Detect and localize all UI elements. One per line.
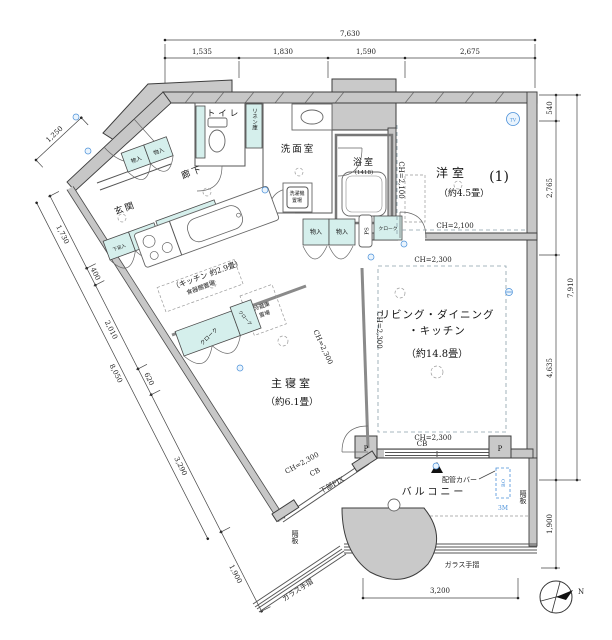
ldk-label-line1: リビング・ダイニング	[380, 308, 495, 321]
master-bedroom-label: 主寝室	[271, 376, 313, 390]
m3-label: 3M	[498, 505, 508, 512]
ch2300-label: CH=2,300	[311, 329, 334, 366]
ps-label: PS	[365, 227, 371, 235]
balcony-planter	[342, 508, 437, 579]
washroom-label: 洗面室	[281, 143, 316, 155]
fix-window-label: 下部FIX	[318, 474, 346, 495]
bathroom-size-label: (1418)	[355, 169, 373, 176]
bathroom-label: 浴室	[353, 156, 375, 168]
storage-strip: 物入 物入 PS クローク	[303, 215, 402, 259]
outlet-icon	[85, 148, 91, 154]
divider-panel-label: 隔板	[291, 529, 299, 545]
ldk-label-line2: ・キッチン	[408, 325, 466, 337]
outlet-icon	[401, 241, 407, 247]
dim-left-8050: 8,050	[108, 363, 124, 384]
western-room-size: （約4.5畳）	[439, 187, 489, 199]
cb-label: CB	[308, 466, 321, 478]
toilet-cabinet	[196, 106, 205, 158]
balcony: バルコニー 配管カバー BO 3M 隔板 隔板 ガラス手摺 ガラス手摺 CH=2…	[253, 451, 537, 612]
outlet-icon	[368, 254, 374, 260]
pillar-label: P	[498, 445, 503, 453]
shaft-block	[332, 79, 396, 130]
toilet-tank	[208, 118, 227, 127]
dim-right-4635: 4,635	[546, 358, 554, 378]
north-needle	[556, 590, 573, 600]
dim-top-seg4: 2,675	[460, 48, 480, 56]
dim-top-seg2: 1,830	[273, 48, 293, 56]
compass: N	[540, 581, 584, 613]
north-label: N	[578, 588, 584, 596]
dim-top-seg1: 1,535	[192, 48, 212, 56]
dims-bottom: 3,200	[362, 578, 520, 599]
toilet-label: トイレ	[207, 109, 242, 119]
dim-top-total: 7,630	[340, 30, 360, 38]
ch2100-label: CH=2,100	[436, 222, 473, 230]
dim-top-seg3: 1,590	[356, 48, 376, 56]
floor-plan-canvas: 7,630 1,535 1,830 1,590 2,675 540 2,765 …	[0, 0, 612, 640]
toilet-bowl	[209, 130, 225, 152]
dim-right-7910: 7,910	[567, 278, 575, 298]
western-room-number: (1)	[489, 169, 509, 185]
balcony-side-wall	[529, 458, 537, 546]
bathtub	[342, 172, 386, 216]
storage-label: 物入	[310, 228, 322, 236]
planter-drain	[388, 499, 400, 511]
dim-right-1900: 1,900	[546, 514, 554, 534]
pipe-cover-label: 配管カバー	[442, 475, 477, 484]
dim-left-1250: 1,250	[45, 125, 65, 145]
dim-right-540: 540	[546, 101, 554, 114]
divider-panel-label: 隔板	[519, 489, 527, 505]
western-room: 洋室 (1) （約4.5畳） CH=2,100 CH=2,100 TV	[397, 113, 526, 239]
dim-left-1900: 1,900	[227, 563, 243, 584]
kitchen-counter	[134, 186, 280, 268]
ch2100-label: CH=2,100	[397, 161, 405, 198]
outlet-icon	[237, 365, 243, 371]
hallway-label: 廊下	[180, 163, 205, 182]
linen-label: リネン庫	[251, 108, 258, 131]
dim-left-400: 400	[89, 266, 102, 282]
outlet-icon	[73, 114, 79, 120]
storage-label: 物入	[336, 228, 348, 236]
washer-space-label2: 置場	[292, 197, 302, 204]
pillar-label: P	[364, 445, 369, 453]
entrance-label: 玄関	[113, 199, 138, 218]
dims-left-1250: 1,250	[28, 110, 89, 169]
washer-space-label: 洗濯機	[289, 190, 304, 197]
balcony-label: バルコニー	[402, 486, 467, 498]
cloak-label: クローク	[378, 226, 397, 232]
western-room-label: 洋室	[436, 165, 468, 180]
glass-rail-label: ガラス手摺	[445, 560, 480, 569]
outlet-icon	[262, 187, 268, 193]
bo-label: BO	[501, 479, 507, 487]
right-wall	[527, 92, 537, 458]
vanity-basin	[301, 110, 323, 124]
master-bedroom-size: （約6.1畳）	[265, 396, 318, 408]
ldk-size-label: （約14.8畳）	[406, 347, 468, 360]
dim-bottom-3200: 3,200	[430, 587, 450, 595]
floor-plan-svg: 7,630 1,535 1,830 1,590 2,675 540 2,765 …	[0, 0, 612, 640]
dims-right: 540 2,765 4,635 7,910 1,900	[539, 94, 581, 570]
tv-label: TV	[510, 118, 517, 124]
outlet-icon	[433, 463, 439, 469]
cb-label: CB	[417, 440, 428, 448]
ch2300-label: CH=2,300	[414, 256, 451, 264]
dim-right-2765: 2,765	[546, 178, 554, 198]
dim-left-620: 620	[142, 371, 155, 387]
